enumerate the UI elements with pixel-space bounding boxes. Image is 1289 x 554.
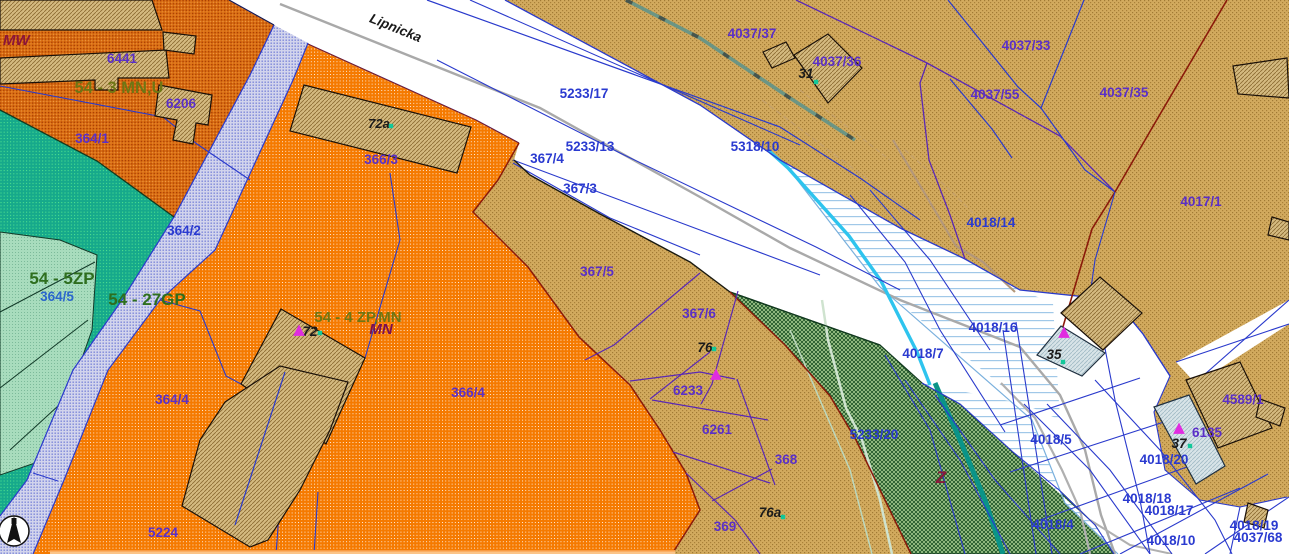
svg-text:5318/10: 5318/10: [731, 139, 780, 154]
svg-text:364/2: 364/2: [167, 223, 201, 238]
svg-text:37: 37: [1171, 436, 1188, 451]
svg-text:367/6: 367/6: [682, 306, 716, 321]
svg-text:364/4: 364/4: [155, 392, 189, 407]
svg-text:4589/1: 4589/1: [1222, 392, 1264, 407]
svg-text:4018/14: 4018/14: [967, 215, 1016, 230]
svg-text:6261: 6261: [702, 422, 733, 437]
svg-text:4037/37: 4037/37: [728, 26, 777, 41]
svg-text:4037/33: 4037/33: [1002, 38, 1051, 53]
svg-text:76a: 76a: [759, 505, 782, 520]
svg-text:6206: 6206: [166, 96, 197, 111]
svg-text:72: 72: [302, 324, 318, 339]
svg-text:4018/20: 4018/20: [1140, 452, 1189, 467]
svg-text:4037/36: 4037/36: [813, 54, 862, 69]
svg-text:72a: 72a: [368, 116, 390, 131]
svg-text:366/3: 366/3: [364, 152, 398, 167]
svg-text:364/5: 364/5: [40, 289, 74, 304]
svg-text:5233/17: 5233/17: [560, 86, 609, 101]
svg-text:76: 76: [697, 340, 713, 355]
svg-text:4018/10: 4018/10: [1147, 533, 1196, 548]
svg-text:5224: 5224: [148, 525, 179, 540]
svg-text:MW: MW: [3, 32, 31, 49]
svg-text:367/3: 367/3: [563, 181, 597, 196]
svg-text:MN: MN: [369, 321, 393, 338]
svg-text:6135: 6135: [1192, 425, 1223, 440]
svg-text:54 - 3 MN,U: 54 - 3 MN,U: [75, 79, 164, 97]
svg-text:4037/68: 4037/68: [1234, 530, 1283, 545]
svg-text:54 - 27GP: 54 - 27GP: [108, 290, 186, 309]
svg-text:Z: Z: [935, 468, 947, 487]
svg-text:4018/17: 4018/17: [1145, 503, 1194, 518]
svg-text:4018/16: 4018/16: [969, 320, 1018, 335]
svg-text:31: 31: [798, 66, 813, 81]
svg-text:364/1: 364/1: [75, 131, 109, 146]
svg-text:366/4: 366/4: [451, 385, 485, 400]
svg-text:6233: 6233: [673, 383, 704, 398]
svg-text:368: 368: [775, 452, 798, 467]
svg-text:367/4: 367/4: [530, 151, 564, 166]
svg-text:367/5: 367/5: [580, 264, 614, 279]
svg-text:6441: 6441: [107, 51, 138, 66]
svg-text:4037/35: 4037/35: [1100, 85, 1149, 100]
svg-text:54 - 5ZP: 54 - 5ZP: [29, 269, 94, 288]
svg-text:5233/13: 5233/13: [566, 139, 615, 154]
svg-text:4017/1: 4017/1: [1180, 194, 1222, 209]
svg-text:369: 369: [714, 519, 737, 534]
svg-text:4037/55: 4037/55: [971, 87, 1020, 102]
svg-text:4018/5: 4018/5: [1030, 432, 1072, 447]
svg-text:5233/20: 5233/20: [850, 427, 899, 442]
svg-text:4018/4: 4018/4: [1032, 517, 1074, 532]
svg-text:35: 35: [1046, 347, 1062, 362]
svg-text:4018/7: 4018/7: [902, 346, 943, 361]
